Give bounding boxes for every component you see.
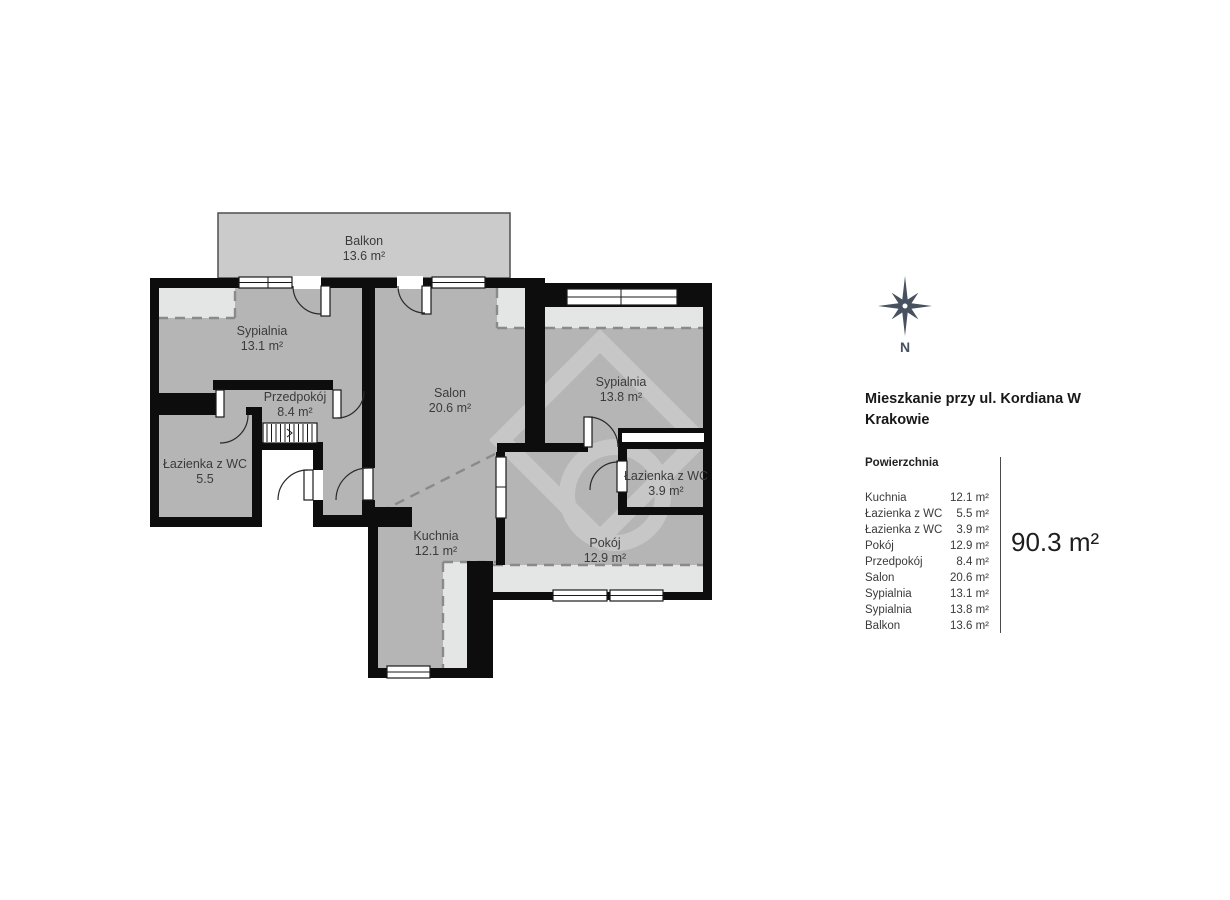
room-label-kuchnia: Kuchnia (413, 529, 458, 543)
area-row-label: Pokój (865, 540, 894, 552)
area-row-label: Balkon (865, 620, 900, 632)
area-row: Łazienka z WC 5.5 m² (865, 506, 989, 522)
area-row-label: Salon (865, 572, 894, 584)
room-label-salon: Salon (434, 386, 466, 400)
area-row-value: 8.4 m² (956, 556, 989, 568)
room-area-balkon: 13.6 m² (343, 249, 385, 263)
compass-north-label: N (900, 339, 910, 355)
area-row: Salon 20.6 m² (865, 570, 989, 586)
area-row-value: 20.6 m² (950, 572, 989, 584)
room-area-sypialnia-2: 13.8 m² (600, 390, 642, 404)
page-title: Mieszkanie przy ul. Kordiana W Krakowie (865, 389, 1100, 431)
total-area: 90.3 m² (1011, 527, 1099, 558)
area-row-label: Sypialnia (865, 604, 912, 616)
area-row: Sypialnia 13.8 m² (865, 602, 989, 618)
room-area-pokoj: 12.9 m² (584, 551, 626, 565)
area-row-value: 12.1 m² (950, 492, 989, 504)
area-row-label: Łazienka z WC (865, 524, 942, 536)
area-section-header: Powierzchnia (865, 457, 939, 469)
stairs (263, 423, 317, 443)
compass: N (878, 276, 932, 355)
area-row: Sypialnia 13.1 m² (865, 586, 989, 602)
area-row: Łazienka z WC 3.9 m² (865, 522, 989, 538)
room-label-sypialnia-1: Sypialnia (237, 324, 288, 338)
area-row: Przedpokój 8.4 m² (865, 554, 989, 570)
area-row: Kuchnia 12.1 m² (865, 490, 989, 506)
area-row: Pokój 12.9 m² (865, 538, 989, 554)
area-row-label: Łazienka z WC (865, 508, 942, 520)
room-label-przedpokoj: Przedpokój (264, 390, 327, 404)
room-area-przedpokoj: 8.4 m² (277, 405, 312, 419)
page-title-line2: Krakowie (865, 410, 1100, 431)
area-row-label: Kuchnia (865, 492, 907, 504)
room-area-sypialnia-1: 13.1 m² (241, 339, 283, 353)
room-area-lazienka-2: 3.9 m² (648, 484, 683, 498)
room-label-lazienka-1: Łazienka z WC (163, 457, 247, 471)
compass-center (901, 302, 909, 310)
total-divider (1000, 457, 1001, 633)
room-label-sypialnia-2: Sypialnia (596, 375, 647, 389)
area-row: Balkon 13.6 m² (865, 618, 989, 634)
area-row-label: Przedpokój (865, 556, 923, 568)
area-row-value: 13.6 m² (950, 620, 989, 632)
room-area-salon: 20.6 m² (429, 401, 471, 415)
area-row-value: 13.1 m² (950, 588, 989, 600)
page-title-line1: Mieszkanie przy ul. Kordiana W (865, 389, 1100, 410)
room-label-lazienka-2: Łazienka z WC (624, 469, 708, 483)
floor-plan: Balkon 13.6 m² Sypialnia 13.1 m² Salon 2… (0, 0, 1230, 900)
room-label-balkon: Balkon (345, 234, 383, 248)
room-label-pokoj: Pokój (589, 536, 620, 550)
area-row-value: 3.9 m² (956, 524, 989, 536)
area-row-value: 5.5 m² (956, 508, 989, 520)
room-area-kuchnia: 12.1 m² (415, 544, 457, 558)
room-area-lazienka-1: 5.5 (196, 472, 213, 486)
area-row-value: 13.8 m² (950, 604, 989, 616)
area-list: Kuchnia 12.1 m² Łazienka z WC 5.5 m² Łaz… (865, 490, 989, 634)
page: Balkon 13.6 m² Sypialnia 13.1 m² Salon 2… (0, 0, 1230, 900)
area-row-value: 12.9 m² (950, 540, 989, 552)
area-row-label: Sypialnia (865, 588, 912, 600)
